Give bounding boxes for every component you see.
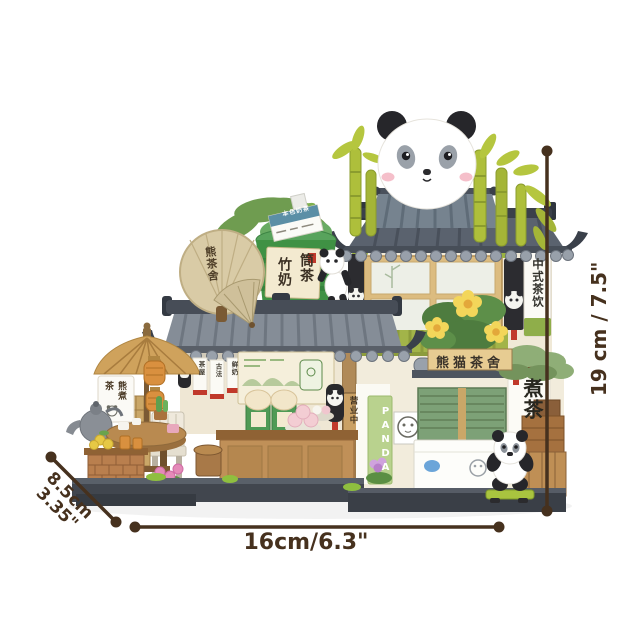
- grass-piece: [222, 475, 238, 483]
- height-dimension-label: 19 cm / 7.5": [589, 244, 611, 414]
- fan-handle: [216, 306, 227, 322]
- panda-banner-text: PANDA: [371, 400, 391, 482]
- pink-box: [167, 424, 179, 433]
- teacup: [118, 422, 129, 430]
- panda-head: [377, 111, 476, 209]
- teacup: [132, 418, 141, 425]
- tea-style-sign-text: 中式茶饮: [530, 258, 546, 318]
- lemon: [90, 441, 99, 450]
- width-dimension-label: 16cm/6.3": [216, 531, 396, 555]
- cup-label-right: 筒茶: [296, 253, 316, 297]
- panda-nose: [423, 169, 431, 175]
- boil-tea-text: 煮茶: [518, 378, 547, 438]
- grass-piece: [343, 483, 361, 491]
- open-board-text: 营业中: [347, 396, 359, 432]
- drink-cup: [120, 436, 130, 449]
- shop-plaque-text: 熊猫茶舍: [430, 352, 510, 371]
- brand-logo: [424, 460, 440, 472]
- blush-cheek: [382, 173, 395, 182]
- blush-cheek: [460, 173, 473, 182]
- lemon: [103, 439, 113, 449]
- shop-roof: [142, 293, 426, 362]
- eave-banner-2-text: 古法: [213, 363, 223, 389]
- stand-sign-text: 熊煮茶: [102, 381, 128, 407]
- grass-piece: [146, 473, 166, 481]
- eave-banner-3-text: 鲜奶: [229, 361, 239, 387]
- wooden-stool: [194, 445, 222, 476]
- product-image: 19 cm / 7.5" 16cm/6.3" 8.5cm 3.35" 熊茶舍 本…: [0, 0, 630, 630]
- drink-cup: [133, 438, 142, 449]
- cup-label-left: 竹奶: [274, 257, 294, 301]
- eave-corner: [566, 231, 588, 250]
- eave-banner-1-text: 茶屋: [196, 361, 206, 387]
